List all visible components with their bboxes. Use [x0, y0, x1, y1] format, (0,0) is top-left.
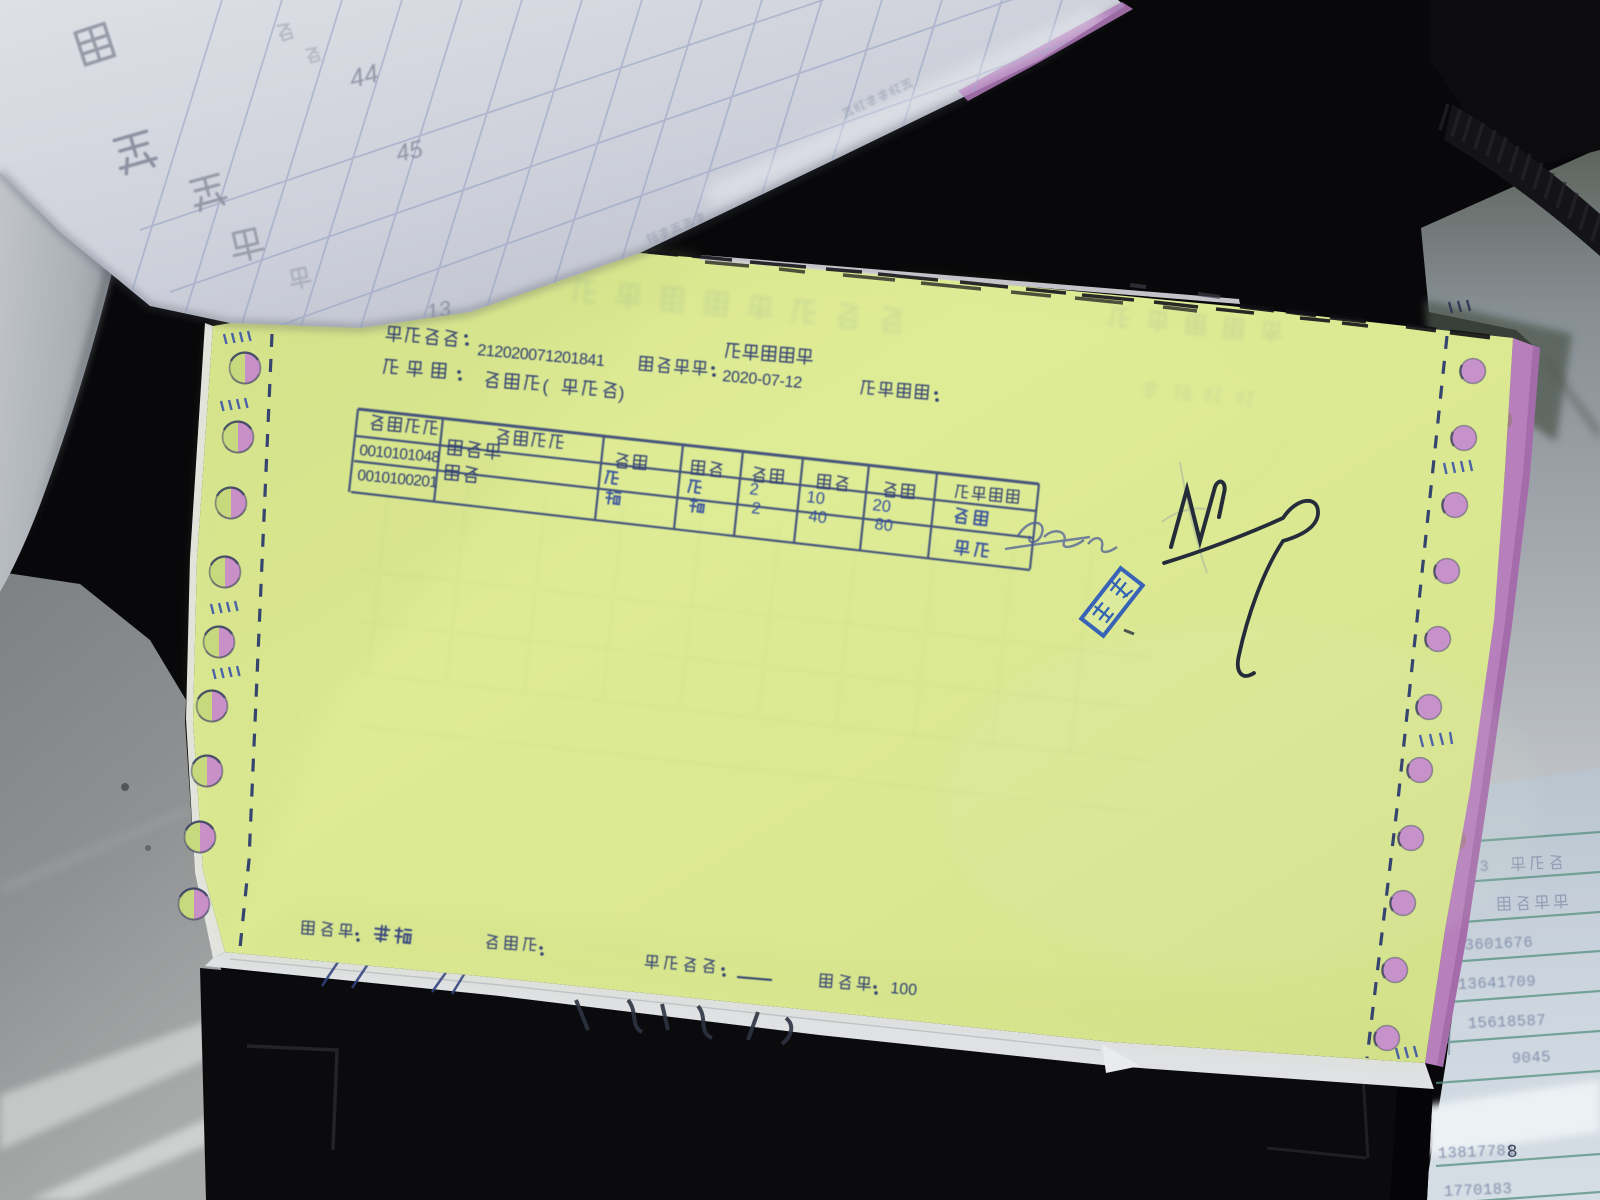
svg-text:13817781: 13817781	[1437, 1142, 1516, 1163]
svg-text:9045: 9045	[1511, 1048, 1551, 1068]
svg-text:8: 8	[1506, 1143, 1518, 1163]
svg-text:10: 10	[806, 488, 826, 508]
svg-text:15618587: 15618587	[1467, 1012, 1546, 1033]
svg-text:40: 40	[808, 507, 828, 527]
svg-text:20: 20	[872, 496, 892, 516]
svg-text:1770183: 1770183	[1443, 1180, 1512, 1200]
svg-text:100: 100	[890, 980, 918, 999]
svg-text:13641709: 13641709	[1457, 973, 1536, 994]
svg-text:80: 80	[874, 515, 894, 535]
